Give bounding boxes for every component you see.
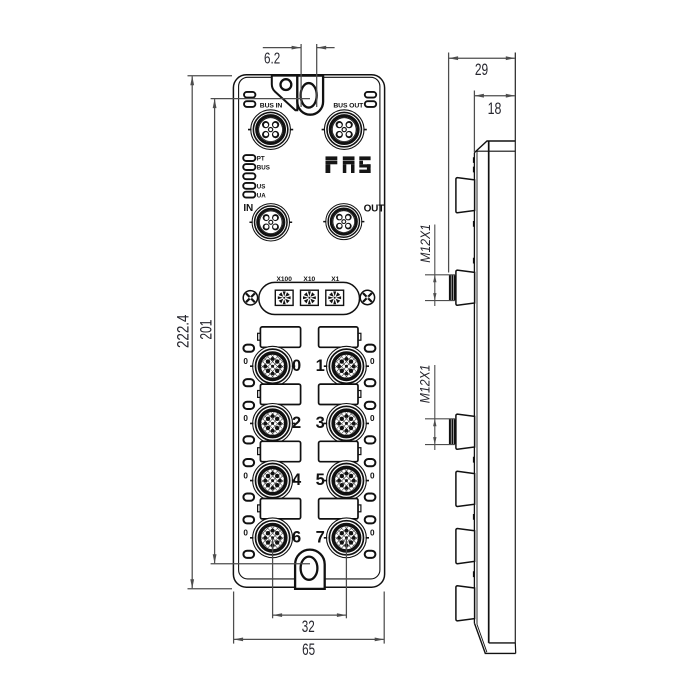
svg-text:PT: PT <box>257 156 265 163</box>
svg-text:0: 0 <box>243 471 248 480</box>
svg-text:X1: X1 <box>331 276 339 283</box>
svg-text:18: 18 <box>488 100 502 118</box>
svg-text:65: 65 <box>302 641 315 659</box>
svg-text:0: 0 <box>370 529 375 538</box>
svg-text:US: US <box>257 184 266 191</box>
svg-text:M12X1: M12X1 <box>418 224 434 263</box>
svg-text:2: 2 <box>292 414 301 432</box>
svg-text:0: 0 <box>370 471 375 480</box>
svg-text:0: 0 <box>292 357 301 375</box>
svg-text:M12X1: M12X1 <box>417 365 433 404</box>
svg-text:BUS OUT: BUS OUT <box>333 103 364 110</box>
svg-text:0: 0 <box>243 414 248 423</box>
svg-text:BUS: BUS <box>257 165 270 172</box>
svg-text:32: 32 <box>302 618 315 636</box>
svg-text:0: 0 <box>243 529 248 538</box>
svg-text:7: 7 <box>316 528 325 546</box>
svg-text:5: 5 <box>316 471 325 489</box>
svg-text:IN: IN <box>243 203 253 214</box>
svg-text:0: 0 <box>370 414 375 423</box>
svg-text:0: 0 <box>243 357 248 366</box>
svg-text:6.2: 6.2 <box>264 51 280 68</box>
svg-text:X10: X10 <box>303 276 315 283</box>
svg-text:3: 3 <box>316 414 325 432</box>
svg-text:222.4: 222.4 <box>175 315 193 349</box>
svg-text:UA: UA <box>257 192 266 199</box>
svg-text:29: 29 <box>475 61 488 79</box>
svg-text:OUT: OUT <box>364 204 385 215</box>
svg-text:1: 1 <box>316 357 325 375</box>
svg-text:BUS IN: BUS IN <box>260 103 283 110</box>
svg-text:4: 4 <box>292 471 302 489</box>
svg-text:6: 6 <box>292 528 301 546</box>
svg-text:0: 0 <box>370 357 375 366</box>
svg-text:201: 201 <box>198 320 216 340</box>
svg-text:X100: X100 <box>276 276 292 283</box>
